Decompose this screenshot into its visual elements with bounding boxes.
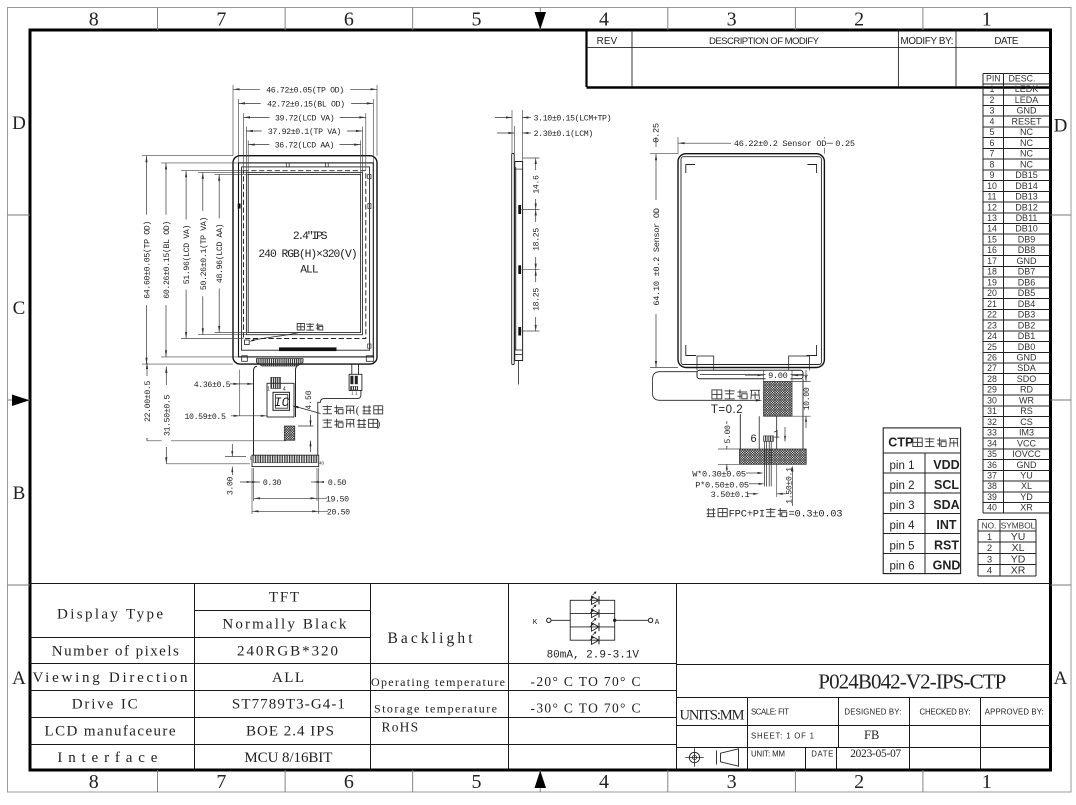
svg-text:TFT: TFT (269, 590, 299, 606)
svg-text:3: 3 (987, 554, 992, 565)
svg-text:24: 24 (987, 331, 997, 341)
svg-text:IM3: IM3 (1019, 428, 1034, 438)
svg-text:4.36±0.5: 4.36±0.5 (194, 381, 231, 390)
svg-text:=0.3±0.03: =0.3±0.03 (789, 509, 843, 521)
svg-text:80mA, 2.9-3.1V: 80mA, 2.9-3.1V (547, 650, 640, 662)
svg-text:DB6: DB6 (1018, 277, 1036, 287)
svg-text:40: 40 (319, 461, 325, 466)
svg-text:DB15: DB15 (1015, 170, 1038, 180)
svg-text:DATE: DATE (811, 749, 833, 758)
svg-text:RESET: RESET (1011, 116, 1042, 126)
svg-text:DB8: DB8 (1018, 245, 1036, 255)
svg-text:APPROVED BY:: APPROVED BY: (985, 708, 1044, 717)
svg-text:IOVCC: IOVCC (1012, 449, 1041, 459)
svg-text:-30° C TO 70° C: -30° C TO 70° C (531, 701, 641, 716)
svg-text:PIN: PIN (986, 74, 1001, 84)
svg-text:CHECKED BY:: CHECKED BY: (920, 708, 971, 717)
svg-text:RS: RS (1020, 406, 1033, 416)
svg-text:40: 40 (987, 503, 997, 513)
svg-text:DB5: DB5 (1018, 288, 1036, 298)
svg-text:LEDK: LEDK (1015, 84, 1039, 94)
svg-text:W*0.30±0.05: W*0.30±0.05 (692, 469, 746, 479)
svg-text:DB14: DB14 (1015, 181, 1038, 191)
svg-text:16: 16 (987, 245, 997, 255)
svg-text:0.25: 0.25 (835, 139, 855, 149)
svg-text:YD: YD (1011, 553, 1026, 565)
svg-text:GND: GND (1017, 256, 1038, 266)
svg-text:6: 6 (344, 771, 354, 793)
svg-text:CS: CS (1020, 417, 1033, 427)
svg-text:pin 4: pin 4 (890, 520, 916, 532)
svg-text:NC: NC (1020, 149, 1033, 159)
svg-text:19: 19 (987, 277, 997, 287)
svg-text:33: 33 (987, 428, 997, 438)
svg-text:1: 1 (773, 430, 780, 442)
svg-text:Number of pixels: Number of pixels (52, 644, 179, 660)
svg-text:SCL: SCL (934, 478, 959, 492)
svg-text:DB0: DB0 (1018, 342, 1036, 352)
svg-text:8: 8 (89, 771, 99, 793)
svg-text:4: 4 (599, 9, 609, 31)
svg-text:9.00: 9.00 (768, 371, 788, 381)
svg-text:YU: YU (1020, 471, 1033, 481)
svg-text:C: C (13, 298, 26, 319)
svg-text:DESIGNED BY:: DESIGNED BY: (844, 708, 901, 717)
svg-text:UNIT: MM: UNIT: MM (751, 749, 785, 758)
svg-text:Operating temperature: Operating temperature (371, 675, 505, 689)
svg-text:ALL: ALL (272, 670, 304, 686)
svg-text:2023-05-07: 2023-05-07 (850, 748, 901, 760)
svg-text:31.50±0.5: 31.50±0.5 (163, 395, 172, 437)
svg-text:6: 6 (750, 434, 757, 446)
svg-text:GND: GND (933, 558, 961, 572)
svg-text:2.4"IPS: 2.4"IPS (293, 231, 328, 243)
svg-text:4: 4 (599, 771, 609, 793)
svg-text:P024B042-V2-IPS-CTP: P024B042-V2-IPS-CTP (818, 670, 1006, 694)
svg-text:38: 38 (987, 481, 997, 491)
svg-text:SCALE: FIT: SCALE: FIT (751, 708, 789, 717)
svg-text:NC: NC (1020, 127, 1033, 137)
svg-text:20: 20 (987, 288, 997, 298)
svg-text:39.72(LCD VA): 39.72(LCD VA) (275, 113, 334, 123)
svg-text:RST: RST (934, 538, 959, 552)
svg-text:GND: GND (1017, 106, 1038, 116)
svg-text:35: 35 (987, 449, 997, 459)
svg-text:LEDA: LEDA (1015, 95, 1039, 105)
svg-text:9: 9 (990, 170, 995, 180)
svg-text:SDA: SDA (1017, 363, 1036, 373)
svg-text:1: 1 (982, 771, 992, 793)
svg-text:46.72±0.05(TP OD): 46.72±0.05(TP OD) (266, 85, 344, 95)
svg-text:3: 3 (990, 106, 995, 116)
svg-text:1: 1 (990, 84, 995, 94)
svg-text:3: 3 (727, 771, 737, 793)
svg-text:P*0.50±0.05: P*0.50±0.05 (695, 480, 749, 490)
svg-text:NO.: NO. (982, 520, 997, 530)
svg-text:15: 15 (987, 234, 997, 244)
svg-text:26: 26 (987, 352, 997, 362)
svg-text:ST7789T3-G4-1: ST7789T3-G4-1 (232, 697, 345, 713)
svg-text:ALL: ALL (300, 265, 319, 277)
svg-text:D: D (1054, 116, 1068, 137)
svg-text:37.92±0.1(TP VA): 37.92±0.1(TP VA) (268, 127, 341, 137)
svg-text:DB9: DB9 (1018, 234, 1036, 244)
svg-text:DATE: DATE (994, 36, 1018, 47)
svg-text:64.10 ±0.2 Sensor OD: 64.10 ±0.2 Sensor OD (652, 208, 662, 305)
svg-text:10.00: 10.00 (803, 387, 812, 410)
svg-text:D: D (12, 113, 26, 134)
svg-text:1: 1 (982, 9, 992, 31)
svg-text:2: 2 (854, 9, 864, 31)
svg-text:5: 5 (471, 771, 481, 793)
svg-text:32: 32 (987, 417, 997, 427)
svg-text:pin 5: pin 5 (890, 540, 915, 552)
svg-text:0.30: 0.30 (263, 479, 282, 488)
svg-text:42.72±0.15(BL OD): 42.72±0.15(BL OD) (267, 99, 345, 109)
svg-text:pin 6: pin 6 (890, 560, 915, 572)
svg-text:XR: XR (1011, 565, 1026, 577)
svg-text:-20° C TO 70° C: -20° C TO 70° C (531, 674, 641, 689)
svg-text:13: 13 (987, 213, 997, 223)
svg-text:A: A (1054, 668, 1068, 689)
svg-text:DB4: DB4 (1018, 299, 1036, 309)
svg-text:LCD manufaceure: LCD manufaceure (45, 724, 176, 740)
svg-text:64.60±0.05(TP OD): 64.60±0.05(TP OD) (143, 221, 153, 299)
svg-text:XL: XL (1012, 542, 1025, 554)
svg-text:XL: XL (1021, 481, 1032, 491)
svg-text:48.96(LCD AA): 48.96(LCD AA) (215, 224, 225, 283)
svg-text:WR: WR (1019, 395, 1034, 405)
svg-text:RD: RD (1020, 385, 1033, 395)
svg-text:4: 4 (987, 566, 992, 577)
svg-text:2.30±0.1(LCM): 2.30±0.1(LCM) (534, 129, 593, 139)
svg-text:2: 2 (854, 771, 864, 793)
svg-text:NC: NC (1020, 159, 1033, 169)
svg-text:18.25: 18.25 (533, 228, 542, 251)
svg-text:30: 30 (987, 395, 997, 405)
svg-text:DB2: DB2 (1018, 320, 1036, 330)
svg-text:pin 2: pin 2 (890, 480, 915, 492)
svg-text:5: 5 (990, 127, 995, 137)
svg-text:(: ( (356, 406, 360, 417)
svg-text:): ) (377, 419, 381, 430)
svg-text:23: 23 (987, 320, 997, 330)
svg-text:Display Type: Display Type (57, 607, 163, 623)
svg-text:A: A (655, 619, 660, 627)
svg-text:SDA: SDA (933, 498, 959, 512)
svg-text:CTP: CTP (888, 435, 913, 449)
svg-text:YD: YD (1020, 492, 1033, 502)
svg-text:50.26±0.1(TP VA): 50.26±0.1(TP VA) (199, 217, 209, 290)
svg-text:6: 6 (344, 9, 354, 31)
svg-text:240 RGB(H)×320(V): 240 RGB(H)×320(V) (258, 249, 357, 261)
svg-text:31: 31 (987, 406, 997, 416)
svg-text:SHEET: 1 OF 1: SHEET: 1 OF 1 (751, 731, 814, 740)
svg-text:14.6: 14.6 (533, 175, 542, 194)
svg-text:22: 22 (987, 310, 997, 320)
svg-text:T=0.2: T=0.2 (711, 404, 743, 416)
svg-text:20.50: 20.50 (327, 509, 350, 518)
svg-text:12: 12 (987, 202, 997, 212)
svg-text:0.25: 0.25 (652, 123, 662, 143)
svg-text:DESCRIPTION OF MODIFY: DESCRIPTION OF MODIFY (709, 36, 820, 47)
svg-text:3.50±0.1: 3.50±0.1 (711, 490, 750, 500)
svg-text:17: 17 (987, 256, 997, 266)
svg-text:DB10: DB10 (1015, 224, 1038, 234)
svg-text:19.50: 19.50 (326, 496, 349, 505)
svg-text:39: 39 (987, 492, 997, 502)
svg-text:MODIFY BY:: MODIFY BY: (901, 36, 954, 47)
svg-text:K: K (533, 619, 538, 627)
svg-text:XR: XR (1020, 503, 1033, 513)
svg-text:10: 10 (987, 181, 997, 191)
svg-text:18.25: 18.25 (533, 288, 542, 311)
svg-text:SDO: SDO (1017, 374, 1037, 384)
svg-text:8: 8 (89, 9, 99, 31)
svg-text:0.50: 0.50 (328, 479, 347, 488)
svg-text:DB7: DB7 (1018, 267, 1036, 277)
svg-text:21: 21 (987, 299, 997, 309)
svg-text:BOE 2.4 IPS: BOE 2.4 IPS (246, 724, 334, 740)
svg-text:YU: YU (1011, 531, 1026, 543)
svg-text:34: 34 (987, 438, 997, 448)
svg-text:REV: REV (597, 36, 618, 47)
svg-text:pin 3: pin 3 (890, 500, 915, 512)
svg-text:6: 6 (990, 138, 995, 148)
svg-text:7: 7 (990, 149, 995, 159)
svg-text:3.10±0.15(LCM+TP): 3.10±0.15(LCM+TP) (534, 114, 612, 124)
svg-text:5.00: 5.00 (724, 425, 733, 444)
svg-text:11: 11 (987, 192, 996, 202)
svg-text:IC: IC (274, 396, 290, 410)
svg-text:8: 8 (990, 159, 995, 169)
svg-text:22.00±0.5: 22.00±0.5 (144, 381, 153, 423)
svg-text:29: 29 (987, 385, 997, 395)
svg-text:37: 37 (987, 471, 997, 481)
svg-text:36.72(LCD AA): 36.72(LCD AA) (275, 141, 334, 151)
svg-text:NC: NC (1020, 138, 1033, 148)
svg-text:GND: GND (1017, 460, 1038, 470)
svg-text:1.50±0.1: 1.50±0.1 (785, 467, 794, 504)
svg-text:7: 7 (216, 9, 226, 31)
svg-text:RoHS: RoHS (382, 720, 420, 735)
svg-text:1: 1 (267, 387, 270, 393)
svg-text:3.00: 3.00 (226, 476, 235, 495)
svg-text:Drive IC: Drive IC (72, 697, 138, 713)
svg-text:DB13: DB13 (1015, 192, 1038, 202)
svg-text:GND: GND (1017, 352, 1038, 362)
svg-text:SYMBOL: SYMBOL (1001, 520, 1036, 530)
svg-text:14: 14 (987, 224, 997, 234)
svg-text:2: 2 (987, 543, 992, 554)
svg-text:27: 27 (987, 363, 997, 373)
svg-text:36: 36 (987, 460, 997, 470)
svg-text:4: 4 (990, 116, 995, 126)
svg-text:28: 28 (987, 374, 997, 384)
svg-text:INT: INT (936, 518, 957, 532)
svg-text:10.59±0.5: 10.59±0.5 (184, 413, 226, 422)
svg-text:7: 7 (216, 771, 226, 793)
svg-text:MCU 8/16BIT: MCU 8/16BIT (244, 750, 332, 766)
svg-text:51.96(LCD VA): 51.96(LCD VA) (182, 225, 192, 284)
svg-text:4: 4 (283, 387, 286, 393)
svg-text:46.22±0.2 Sensor OD: 46.22±0.2 Sensor OD (734, 139, 826, 149)
svg-text:DB3: DB3 (1018, 310, 1036, 320)
svg-text:VDD: VDD (933, 458, 959, 472)
svg-text:Viewing Direction: Viewing Direction (33, 670, 189, 686)
svg-text:UNITS:MM: UNITS:MM (680, 708, 745, 724)
svg-text:DB11: DB11 (1016, 213, 1038, 223)
svg-text:DB12: DB12 (1015, 202, 1038, 212)
svg-text:60.26±0.15(BL OD): 60.26±0.15(BL OD) (162, 221, 172, 299)
svg-text:FPC+PI: FPC+PI (729, 509, 766, 521)
svg-text:DB1: DB1 (1018, 331, 1036, 341)
svg-text:B: B (13, 483, 26, 504)
svg-text:3: 3 (727, 9, 737, 31)
svg-text:240RGB*320: 240RGB*320 (237, 644, 338, 660)
svg-text:FB: FB (864, 728, 879, 742)
svg-text:18: 18 (987, 267, 997, 277)
svg-text:VCC: VCC (1017, 438, 1037, 448)
svg-text:25: 25 (987, 342, 997, 352)
svg-text:4.50: 4.50 (305, 390, 314, 409)
svg-text:DESC.: DESC. (1009, 74, 1036, 84)
svg-text:pin 1: pin 1 (890, 460, 915, 472)
svg-text:1: 1 (987, 532, 992, 543)
svg-text:Interface: Interface (57, 750, 157, 766)
svg-text:2: 2 (990, 95, 995, 105)
svg-text:5: 5 (471, 9, 481, 31)
svg-text:A: A (12, 668, 26, 689)
